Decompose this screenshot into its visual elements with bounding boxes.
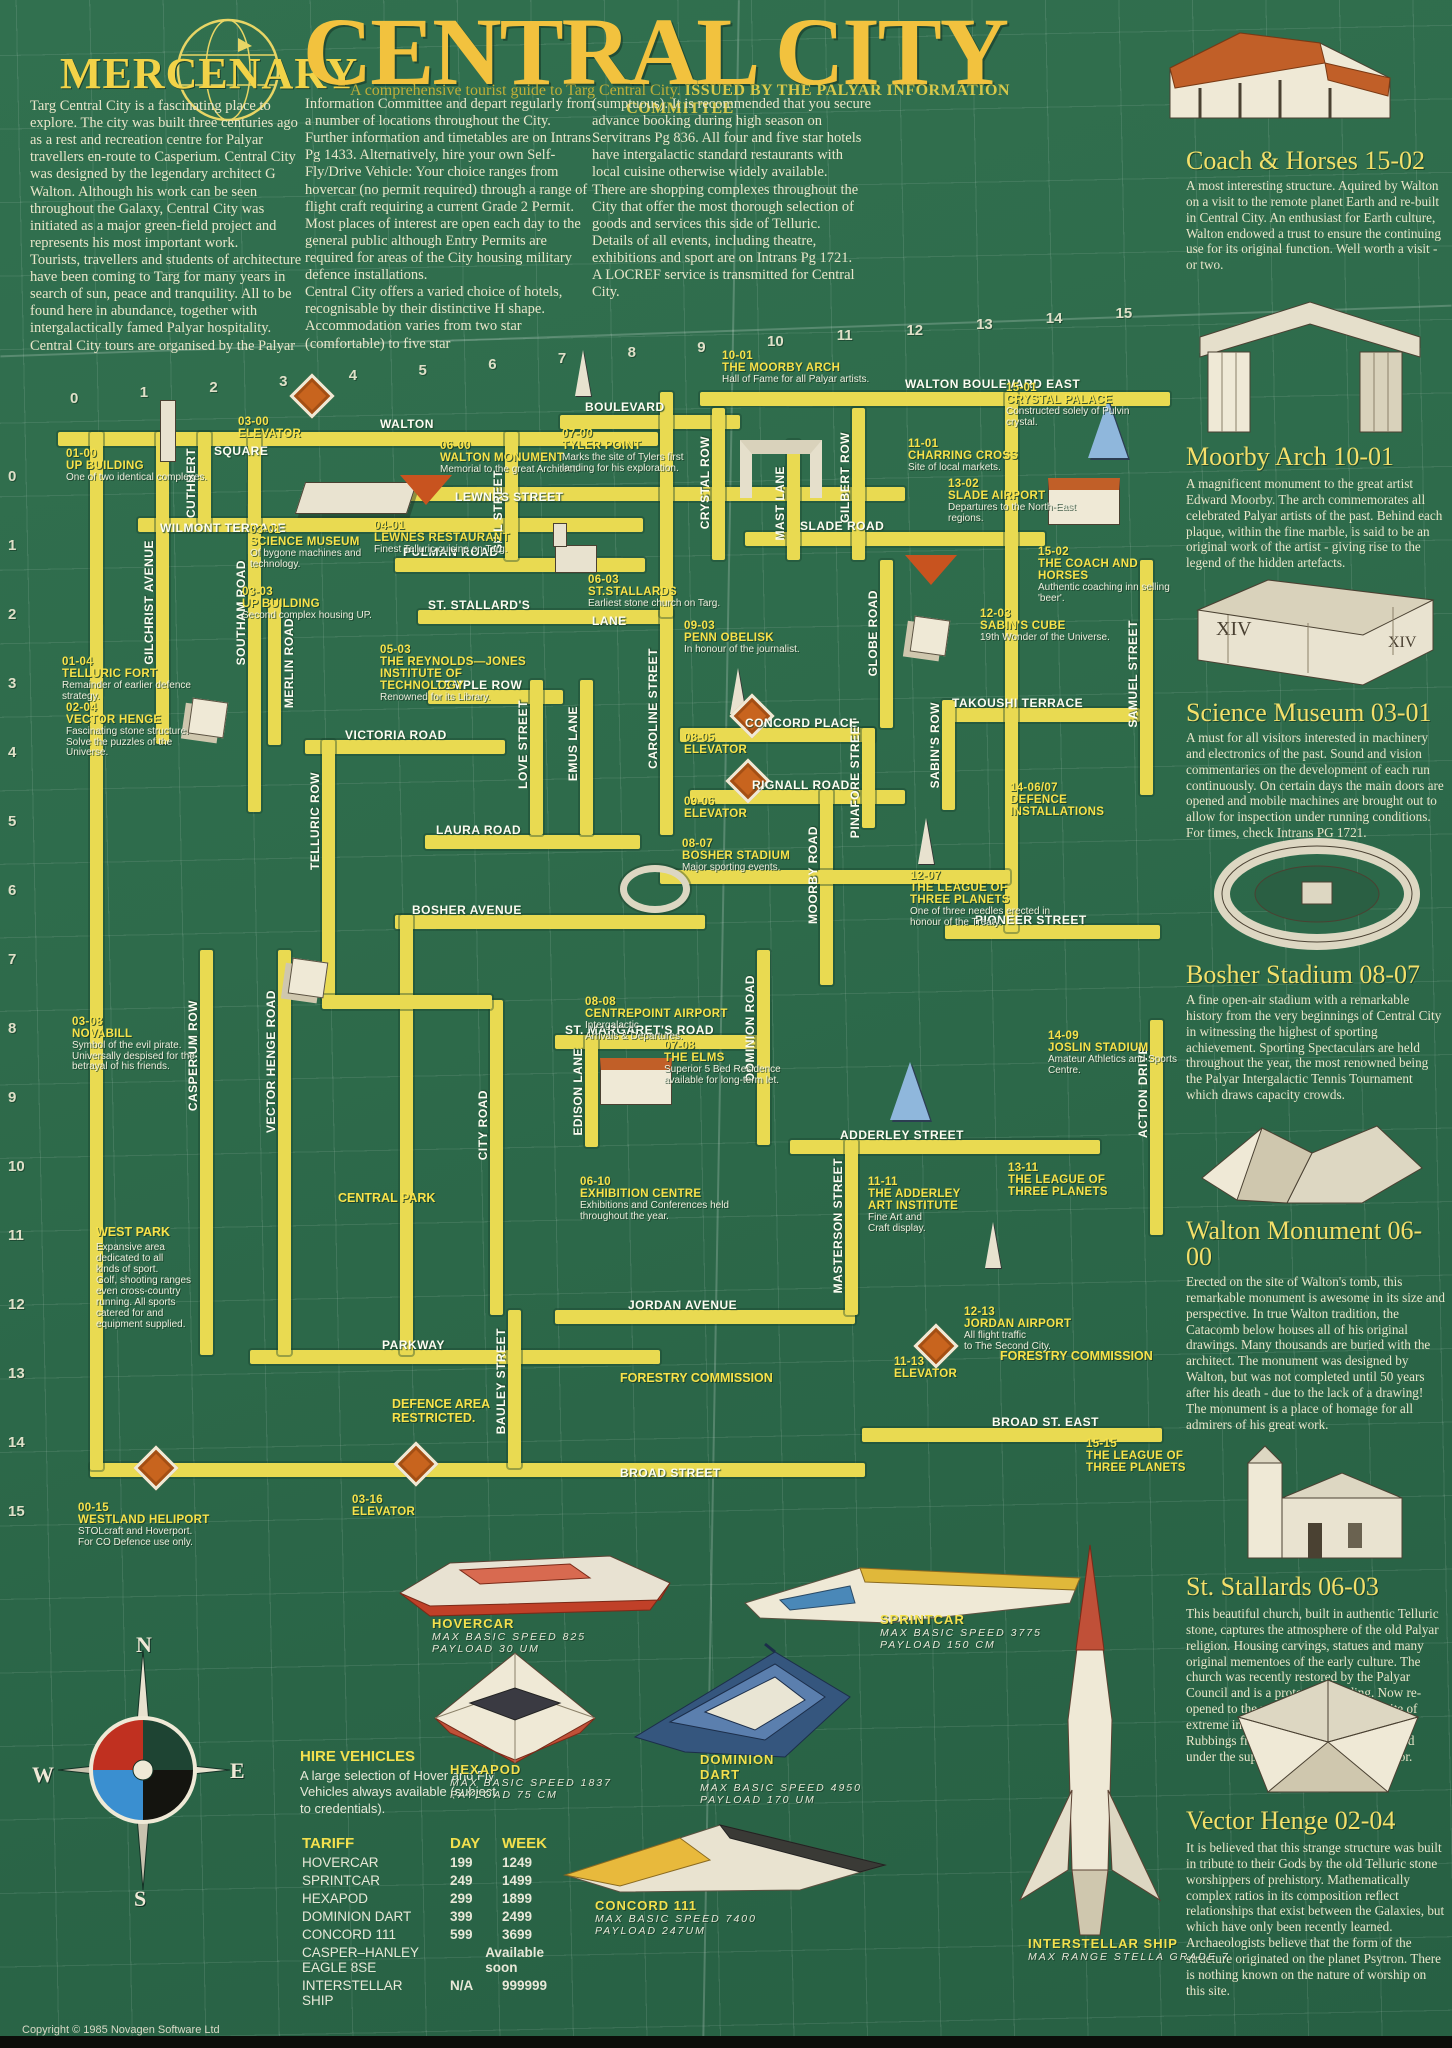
map-road-gilbert-row — [852, 408, 865, 560]
map-landmark-slade-airport-13-02: 13-02SLADE AIRPORTDepartures to the Nort… — [948, 478, 1098, 524]
tariff-vehicle-name: HEXAPOD — [302, 1891, 450, 1906]
landmark-desc: Renowned for its Library. — [380, 693, 530, 704]
vehicle-spec-speed: MAX RANGE STELLA GRADE 7 — [1028, 1951, 1230, 1963]
map-col-number: 10 — [767, 333, 784, 350]
house-shape — [600, 1058, 672, 1105]
vehicle-name: DOMINION DART — [700, 1752, 862, 1782]
tariff-week-price: 2499 — [502, 1909, 532, 1924]
copyright-text: Copyright © 1985 Novagen Software Ltd — [22, 2024, 220, 2036]
street-name-laura-road: LAURA ROAD — [436, 823, 521, 837]
sidebar-section-text: A fine open-air stadium with a remarkabl… — [1186, 992, 1446, 1103]
map-glider-icon — [400, 475, 452, 505]
landmark-code: 08-08 — [585, 996, 728, 1008]
compass-west-label: W — [32, 1762, 54, 1788]
street-name-lewnes-street: LEWNES STREET — [455, 490, 564, 504]
street-name-samuel-street: SAMUEL STREET — [1126, 620, 1140, 728]
st-stallards-illustration — [1228, 1438, 1428, 1568]
landmark-name: DEFENCE INSTALLATIONS — [1010, 794, 1104, 818]
landmark-desc: Memorial to the great Architect. — [440, 465, 578, 476]
compass-south-label: S — [134, 1886, 146, 1912]
tariff-day-price: 199 — [450, 1855, 502, 1870]
landmark-code: 11-13 — [894, 1356, 957, 1368]
landmark-code: 10-01 — [722, 350, 869, 362]
vehicle-label-hexapod: HEXAPODMAX BASIC SPEED 1837PAYLOAD 75 CM — [450, 1762, 612, 1801]
vector-henge-illustration — [1228, 1672, 1428, 1802]
vehicle-spec-payload: PAYLOAD 247UM — [595, 1925, 757, 1937]
landmark-desc: Authentic coaching inn selling 'beer'. — [1038, 583, 1186, 604]
map-road-love-street — [530, 680, 543, 835]
landmark-name: CHARRING CROSS — [908, 450, 1018, 462]
map-landmark-the-league-of-three-planets-12-07: 12-07THE LEAGUE OF THREE PLANETSOne of t… — [910, 870, 1060, 928]
street-name-mast-lane: MAST LANE — [773, 466, 787, 541]
map-landmark-vector-henge-02-04: 02-04VECTOR HENGEFascinating stone struc… — [66, 702, 216, 759]
map-landmark-joslin-stadium-14-09: 14-09JOSLIN STADIUMAmateur Athletics and… — [1048, 1030, 1186, 1076]
intro-column-1: Targ Central City is a fascinating place… — [30, 98, 302, 355]
map-row-number: 7 — [8, 951, 16, 968]
landmark-desc: Departures to the North-East regions. — [948, 503, 1098, 524]
map-road-victoria-road — [305, 740, 505, 754]
map-area-forestry-commission: FORESTRY COMMISSION — [620, 1372, 773, 1386]
map-area-desc: Expansive area dedicated to all kinds of… — [96, 1242, 191, 1330]
landmark-desc: Superior 5 Bed Residence available for l… — [664, 1065, 814, 1086]
landmark-name: JORDAN AIRPORT — [964, 1318, 1071, 1330]
map-landmark-defence-installations-14-06-07: 14-06/07DEFENCE INSTALLATIONS — [1010, 782, 1104, 818]
vehicle-label-interstellar-ship: INTERSTELLAR SHIPMAX RANGE STELLA GRADE … — [1028, 1936, 1230, 1963]
vehicle-spec-payload: PAYLOAD 170 UM — [700, 1794, 862, 1806]
vehicle-spec-speed: MAX BASIC SPEED 3775 — [880, 1627, 1042, 1639]
map-road-item — [322, 995, 492, 1009]
map-landmark-bosher-stadium-08-07: 08-07BOSHER STADIUMMajor sporting events… — [682, 838, 790, 874]
landmark-name: ELEVATOR — [238, 428, 301, 440]
map-road-emus-lane — [580, 680, 593, 835]
compass-rose: N E S W — [48, 1640, 238, 1900]
street-name-st-stallard-s: ST. STALLARD'S — [428, 598, 530, 612]
street-name-masterson-street: MASTERSON STREET — [831, 1158, 845, 1293]
sidebar-section-title: Bosher Stadium 08-07 — [1186, 962, 1446, 988]
map-landmark-elevator-08-05: 08-05ELEVATOR — [684, 732, 747, 756]
landmark-name: TELLURIC FORT — [62, 668, 212, 680]
map-road-casperium-row — [200, 950, 213, 1355]
map-landmark-up-building-03-03: 03-03UP BUILDINGSecond complex housing U… — [242, 586, 372, 622]
street-name-broad-st-east: BROAD ST. EAST — [992, 1415, 1099, 1429]
street-name-moorby-road: MOORBY ROAD — [806, 826, 820, 924]
vehicle-spec-payload: PAYLOAD 30 UM — [432, 1643, 586, 1655]
map-landmark-telluric-fort-01-04: 01-04TELLURIC FORTRemainder of earlier d… — [62, 656, 212, 702]
sidebar-section-science-museum-03-01: Science Museum 03-01A must for all visit… — [1186, 700, 1446, 841]
street-name-sabin-s-row: SABIN'S ROW — [928, 702, 942, 788]
landmark-desc: Major sporting events. — [682, 863, 790, 874]
landmark-name: CRYSTAL PALACE — [1006, 394, 1156, 406]
landmark-name: WALTON MONUMENT — [440, 452, 578, 464]
landmark-desc: Second complex housing UP. — [242, 611, 372, 622]
landmark-code: 15-15 — [1086, 1438, 1186, 1450]
street-name-love-street: LOVE STREET — [516, 700, 530, 789]
vehicle-name: SPRINTCAR — [880, 1612, 1042, 1627]
sidebar-section-coach-horses-15-02: Coach & Horses 15-02A most interesting s… — [1186, 148, 1446, 273]
map-road-masterson-street — [845, 1140, 858, 1315]
street-name-rignall-road: RIGNALL ROAD — [752, 778, 850, 792]
map-road-pinafore-street — [862, 728, 875, 828]
map-row-number: 8 — [8, 1020, 16, 1037]
moorby-arch-illustration — [1190, 282, 1430, 437]
map-row-number: 5 — [8, 813, 16, 830]
landmark-code: 03-16 — [352, 1494, 415, 1506]
coach-horses-illustration — [1150, 8, 1410, 138]
landmark-code: 04-01 — [374, 520, 510, 532]
map-road-item — [400, 915, 413, 1355]
map-landmark-the-moorby-arch-10-01: 10-01THE MOORBY ARCHHall of Fame for all… — [722, 350, 869, 386]
vehicle-name: HOVERCAR — [432, 1616, 586, 1631]
vehicle-name: CONCORD 111 — [595, 1898, 757, 1913]
landmark-name: NOVABILL — [72, 1028, 222, 1040]
landmark-name: ELEVATOR — [684, 808, 747, 820]
map-obelisk-icon — [918, 818, 934, 864]
landmark-code: 15-01 — [1006, 382, 1156, 394]
map-obelisk-icon — [985, 1222, 1001, 1268]
map-col-number: 7 — [558, 350, 566, 367]
street-name-telluric-row: TELLURIC ROW — [308, 772, 322, 870]
map-diamond-icon — [400, 1448, 432, 1480]
sidebar-section-title: Moorby Arch 10-01 — [1186, 442, 1446, 472]
map-road-sabin-s-row — [942, 700, 955, 810]
map-road-takoushi-terrace — [945, 708, 1140, 722]
diamond-shape — [289, 373, 334, 418]
landmark-code: 12-03 — [980, 608, 1110, 620]
map-row-number: 0 — [8, 468, 16, 485]
tariff-week-price: 3699 — [502, 1927, 532, 1942]
landmark-desc: Fine Art and Craft display. — [868, 1213, 961, 1234]
crystal-shape — [890, 1062, 930, 1120]
map-road-bosher-avenue — [395, 915, 705, 929]
tariff-vehicle-name: DOMINION DART — [302, 1909, 450, 1924]
obelisk-shape — [918, 818, 934, 864]
landmark-name: THE ADDERLEY ART INSTITUTE — [868, 1188, 961, 1212]
map-diamond-icon — [296, 380, 328, 412]
obelisk-shape — [575, 350, 591, 396]
tariff-week-price: 1499 — [502, 1873, 532, 1888]
map-landmark-charring-cross-11-01: 11-01CHARRING CROSSSite of local markets… — [908, 438, 1018, 474]
map-col-number: 9 — [697, 339, 705, 356]
map-road-caroline-street — [660, 610, 673, 835]
map-col-number: 15 — [1116, 305, 1133, 322]
map-col-number: 6 — [488, 356, 496, 373]
map-road-pulman-road — [395, 558, 645, 572]
landmark-name: WESTLAND HELIPORT — [78, 1514, 210, 1526]
landmark-name: BOSHER STADIUM — [682, 850, 790, 862]
landmark-code: 03-08 — [72, 1016, 222, 1028]
tariff-day-price — [438, 1945, 486, 1975]
map-col-number: 11 — [837, 327, 853, 344]
map-obelisk-icon — [575, 350, 591, 396]
landmark-code: 08-07 — [682, 838, 790, 850]
vehicle-label-sprintcar: SPRINTCARMAX BASIC SPEED 3775PAYLOAD 150… — [880, 1612, 1042, 1651]
map-road-moorby-road — [820, 790, 833, 985]
landmark-name: THE MOORBY ARCH — [722, 362, 869, 374]
map-row-number: 14 — [8, 1434, 25, 1451]
sidebar-section-title: Science Museum 03-01 — [1186, 700, 1446, 726]
map-landmark-the-adderley-art-institute-11-11: 11-11THE ADDERLEY ART INSTITUTEFine Art … — [868, 1176, 961, 1234]
compass-north-label: N — [136, 1632, 152, 1658]
street-name-caroline-street: CAROLINE STREET — [646, 648, 660, 769]
landmark-desc: Hall of Fame for all Palyar artists. — [722, 375, 869, 386]
diamond-shape — [393, 1441, 438, 1486]
walton-monument-illustration — [1192, 1108, 1432, 1213]
tariff-row-hexapod: HEXAPOD2991899 — [302, 1891, 572, 1906]
landmark-name: EXHIBITION CENTRE — [580, 1188, 730, 1200]
street-name-walton: WALTON — [380, 417, 434, 431]
map-col-number: 1 — [140, 384, 148, 401]
street-name-edison-lane: EDISON LANE — [571, 1048, 585, 1136]
vehicle-name: INTERSTELLAR SHIP — [1028, 1936, 1230, 1951]
map-col-number: 14 — [1046, 310, 1063, 327]
map-landmark-the-league-of-three-planets-13-11: 13-11THE LEAGUE OF THREE PLANETS — [1008, 1162, 1108, 1198]
map-road-parkway — [250, 1350, 660, 1364]
map-landmark-up-building-01-00: 01-00UP BUILDINGOne of two identical com… — [66, 448, 207, 484]
map-landmark-centrepoint-airport-08-08: 08-08CENTREPOINT AIRPORTIntergalactic Ar… — [585, 996, 728, 1042]
landmark-desc: Constructed solely of Pulvin crystal. — [1006, 407, 1156, 428]
map-landmark-the-elms-07-08: 07-08THE ELMSSuperior 5 Bed Residence av… — [664, 1040, 814, 1086]
map-landmark-westland-heliport-00-15: 00-15WESTLAND HELIPORTSTOLcraft and Hove… — [78, 1502, 210, 1548]
landmark-code: 02-04 — [66, 702, 216, 714]
map-landmark-elevator-09-06: 09-06ELEVATOR — [684, 796, 747, 820]
tariff-vehicle-name: HOVERCAR — [302, 1855, 450, 1870]
map-road-globe-road — [880, 560, 893, 728]
street-name-adderley-street: ADDERLEY STREET — [840, 1128, 964, 1142]
vehicle-spec-speed: MAX BASIC SPEED 7400 — [595, 1913, 757, 1925]
landmark-code: 13-02 — [948, 478, 1098, 490]
tariff-week-price: 1899 — [502, 1891, 532, 1906]
tariff-day-price: 299 — [450, 1891, 502, 1906]
street-name-gilchrist-avenue: GILCHRIST AVENUE — [142, 540, 156, 665]
map-landmark-elevator-03-00: 03-00ELEVATOR — [238, 416, 301, 440]
tariff-table: TARIFF DAY WEEK HOVERCAR1991249SPRINTCAR… — [302, 1832, 572, 2008]
landmark-desc: All flight traffic to The Second City. — [964, 1331, 1071, 1352]
landmark-code: 01-04 — [62, 656, 212, 668]
tariff-week-price: 1249 — [502, 1855, 532, 1870]
landmark-desc: Fascinating stone structure. Solve the p… — [66, 727, 216, 759]
map-road-adderley-street — [790, 1140, 1100, 1154]
landmark-code: 00-15 — [78, 1502, 210, 1514]
street-name-merlin-road: MERLIN ROAD — [282, 618, 296, 708]
map-museum-icon — [300, 482, 412, 514]
street-name-emus-lane: EMUS LANE — [566, 706, 580, 781]
sidebar-section-text: A must for all visitors interested in ma… — [1186, 730, 1446, 841]
map-landmark-exhibition-centre-06-10: 06-10EXHIBITION CENTREExhibitions and Co… — [580, 1176, 730, 1222]
vehicle-label-hovercar: HOVERCARMAX BASIC SPEED 825PAYLOAD 30 UM — [432, 1616, 586, 1655]
landmark-name: UP BUILDING — [242, 598, 372, 610]
landmark-desc: In honour of the journalist. — [684, 645, 800, 656]
landmark-name: SABIN'S CUBE — [980, 620, 1110, 632]
map-landmark-the-coach-and-horses-15-02: 15-02THE COACH AND HORSESAuthentic coach… — [1038, 546, 1186, 604]
map-landmark-walton-monument-06-00: 06-00WALTON MONUMENTMemorial to the grea… — [440, 440, 578, 476]
map-glider-icon — [905, 555, 957, 585]
cube-shape — [288, 958, 329, 999]
landmark-name: THE ELMS — [664, 1052, 814, 1064]
street-name-victoria-road: VICTORIA ROAD — [345, 728, 447, 742]
map-landmark-crystal-palace-15-01: 15-01CRYSTAL PALACEConstructed solely of… — [1006, 382, 1156, 428]
interstellar-ship-illustration — [1000, 1540, 1180, 1940]
landmark-name: TYLER POINT — [562, 440, 712, 452]
science-museum-illustration: XIV XIV — [1188, 555, 1443, 695]
map-landmark-lewnes-restaurant-04-01: 04-01LEWNES RESTAURANTFinest Telluric cu… — [374, 520, 510, 556]
landmark-code: 03-03 — [242, 586, 372, 598]
church-shape — [555, 545, 597, 573]
tariff-row-concord-111: CONCORD 1115993699 — [302, 1927, 572, 1942]
landmark-code: 07-08 — [664, 1040, 814, 1052]
landmark-desc: One of two identical complexes. — [66, 473, 207, 484]
street-name-jordan-avenue: JORDAN AVENUE — [628, 1298, 737, 1312]
city-map: 0123456789101112131415012345678910111213… — [0, 340, 1186, 1570]
cube-shape — [910, 616, 951, 657]
sidebar-section-text: A most interesting structure. Aquired by… — [1186, 178, 1446, 273]
landmark-code: 07-00 — [562, 428, 712, 440]
glider-shape — [905, 555, 957, 585]
landmark-name: THE LEAGUE OF THREE PLANETS — [1008, 1174, 1108, 1198]
tariff-day-price: 599 — [450, 1927, 502, 1942]
map-road-city-road — [490, 1000, 503, 1315]
glider-shape — [400, 475, 452, 505]
obelisk-shape — [985, 1222, 1001, 1268]
landmark-name: ELEVATOR — [684, 744, 747, 756]
landmark-name: VECTOR HENGE — [66, 714, 216, 726]
landmark-code: 06-03 — [588, 574, 720, 586]
sidebar-section-bosher-stadium-08-07: Bosher Stadium 08-07A fine open-air stad… — [1186, 962, 1446, 1103]
street-name-city-road: CITY ROAD — [476, 1090, 490, 1160]
landmark-name: THE LEAGUE OF THREE PLANETS — [1086, 1450, 1186, 1474]
map-col-number: 0 — [70, 390, 78, 407]
tariff-week-price: Available soon — [485, 1945, 572, 1975]
vehicle-label-dominion-dart: DOMINION DARTMAX BASIC SPEED 4950PAYLOAD… — [700, 1752, 862, 1806]
map-row-number: 11 — [8, 1227, 24, 1244]
map-landmark-elevator-03-16: 03-16ELEVATOR — [352, 1494, 415, 1518]
map-landmark-the-reynolds-jones-institute-of-technology-05-03: 05-03THE REYNOLDS—JONES INSTITUTE OF TEC… — [380, 644, 530, 704]
landmark-desc: Amateur Athletics and Sports Centre. — [1048, 1055, 1186, 1076]
landmark-code: 14-06/07 — [1010, 782, 1104, 794]
street-name-globe-road: GLOBE ROAD — [866, 590, 880, 676]
landmark-name: PENN OBELISK — [684, 632, 800, 644]
street-name-bauley-street: BAULEY STREET — [494, 1328, 508, 1434]
map-landmark-the-league-of-three-planets-15-15: 15-15THE LEAGUE OF THREE PLANETS — [1086, 1438, 1186, 1474]
bosher-stadium-illustration — [1210, 832, 1425, 957]
landmark-desc: STOLcraft and Hoverport. For CO Defence … — [78, 1527, 210, 1548]
map-area-west-park: WEST PARK — [96, 1226, 170, 1240]
map-row-number: 3 — [8, 675, 16, 692]
tariff-row-casper-hanley-eagle-8se: CASPER–HANLEY EAGLE 8SEAvailable soon — [302, 1945, 572, 1975]
map-landmark-penn-obelisk-09-03: 09-03PENN OBELISKIn honour of the journa… — [684, 620, 800, 656]
sidebar-section-title: Vector Henge 02-04 — [1186, 1806, 1446, 1836]
sidebar-section-title: St. Stallards 06-03 — [1186, 1572, 1446, 1602]
vehicle-spec-speed: MAX BASIC SPEED 4950 — [700, 1782, 862, 1794]
map-row-number: 1 — [8, 537, 16, 554]
tariff-vehicle-name: INTERSTELLAR SHIP — [302, 1978, 450, 2008]
map-landmark-st-stallards-06-03: 06-03ST.STALLARDSEarliest stone church o… — [588, 574, 720, 610]
landmark-code: 06-10 — [580, 1176, 730, 1188]
map-landmark-sabin-s-cube-12-03: 12-03SABIN'S CUBE19th Wonder of the Univ… — [980, 608, 1110, 644]
tariff-vehicle-name: SPRINTCAR — [302, 1873, 450, 1888]
sidebar-section-title: Walton Monument 06-00 — [1186, 1218, 1446, 1270]
diamond-shape — [133, 1445, 178, 1490]
sidebar-section-vector-henge-02-04: Vector Henge 02-04It is believed that th… — [1186, 1806, 1446, 1998]
landmark-desc: One of three needles erected in honour o… — [910, 907, 1060, 928]
landmark-name: SLADE AIRPORT — [948, 490, 1098, 502]
landmark-desc: Finest Telluric cuisine on Targ. — [374, 545, 510, 556]
map-landmark-jordan-airport-12-13: 12-13JORDAN AIRPORTAll flight traffic to… — [964, 1306, 1071, 1352]
map-road-broad-street — [90, 1463, 865, 1477]
landmark-name: LEWNES RESTAURANT — [374, 532, 510, 544]
landmark-code: 06-00 — [440, 440, 578, 452]
landmark-name: THE REYNOLDS—JONES INSTITUTE OF TECHNOLO… — [380, 656, 530, 692]
landmark-code: 15-02 — [1038, 546, 1186, 558]
tariff-vehicle-name: CASPER–HANLEY EAGLE 8SE — [302, 1945, 438, 1975]
poster: MERCENARY CENTRAL CITY A comprehensive t… — [0, 0, 1452, 2048]
landmark-code: 05-03 — [380, 644, 530, 656]
street-name-concord-place: CONCORD PLACE — [745, 716, 858, 730]
map-area-defence-area-restricted: DEFENCE AREA RESTRICTED. — [392, 1398, 490, 1426]
tariff-row-interstellar-ship: INTERSTELLAR SHIPN/A999999 — [302, 1978, 572, 2008]
landmark-code: 08-05 — [684, 732, 747, 744]
bottom-edge — [0, 2036, 1452, 2048]
compass-east-label: E — [230, 1758, 245, 1784]
street-name-lane: LANE — [592, 614, 627, 628]
map-house-icon — [600, 1058, 672, 1105]
landmark-desc: Exhibitions and Conferences held through… — [580, 1201, 730, 1222]
tariff-day-price: 249 — [450, 1873, 502, 1888]
sidebar-section-text: Erected on the site of Walton's tomb, th… — [1186, 1274, 1446, 1432]
landmark-code: 09-06 — [684, 796, 747, 808]
landmark-desc: Symbol of the evil pirate. Universally d… — [72, 1041, 222, 1073]
landmark-code: 01-00 — [66, 448, 207, 460]
map-ring-icon — [620, 865, 690, 913]
svg-text:XIV: XIV — [1388, 634, 1417, 651]
tariff-title: TARIFF — [302, 1835, 450, 1852]
landmark-desc: Remainder of earlier defence strategy. — [62, 681, 212, 702]
map-landmark-tyler-point-07-00: 07-00TYLER POINTMarks the site of Tylers… — [562, 428, 712, 474]
map-road-edison-lane — [585, 1035, 598, 1147]
map-col-number: 2 — [209, 379, 217, 396]
map-cube-icon — [912, 618, 948, 654]
vehicle-spec-payload: PAYLOAD 75 CM — [450, 1789, 612, 1801]
landmark-code: 13-11 — [1008, 1162, 1108, 1174]
street-name-takoushi-terrace: TAKOUSHI TERRACE — [952, 696, 1083, 710]
vehicle-name: HEXAPOD — [450, 1762, 612, 1777]
map-row-number: 13 — [8, 1365, 25, 1382]
vehicle-spec-speed: MAX BASIC SPEED 825 — [432, 1631, 586, 1643]
vehicle-spec-speed: MAX BASIC SPEED 1837 — [450, 1777, 612, 1789]
map-row-number: 2 — [8, 606, 16, 623]
landmark-code: 03-00 — [238, 416, 301, 428]
landmark-name: THE LEAGUE OF THREE PLANETS — [910, 882, 1060, 906]
tariff-row-sprintcar: SPRINTCAR2491499 — [302, 1873, 572, 1888]
street-name-vector-henge-road: VECTOR HENGE ROAD — [264, 990, 278, 1133]
ring-shape — [620, 865, 690, 913]
dominion-dart-illustration — [625, 1642, 855, 1762]
landmark-desc: Marks the site of Tylers first landing f… — [562, 453, 712, 474]
street-name-gilbert-row: GILBERT ROW — [838, 432, 852, 523]
landmark-code: 09-03 — [684, 620, 800, 632]
map-row-number: 10 — [8, 1158, 25, 1175]
map-road-laura-road — [425, 835, 640, 849]
map-cube-icon — [290, 960, 326, 996]
map-row-number: 6 — [8, 882, 16, 899]
landmark-desc: Site of local markets. — [908, 463, 1018, 474]
map-row-number: 9 — [8, 1089, 16, 1106]
landmark-code: 14-09 — [1048, 1030, 1186, 1042]
tariff-day-price: 399 — [450, 1909, 502, 1924]
landmark-code: 12-07 — [910, 870, 1060, 882]
landmark-name: UP BUILDING — [66, 460, 207, 472]
vehicle-spec-payload: PAYLOAD 150 CM — [880, 1639, 1042, 1651]
map-road-crystal-row — [712, 408, 725, 560]
